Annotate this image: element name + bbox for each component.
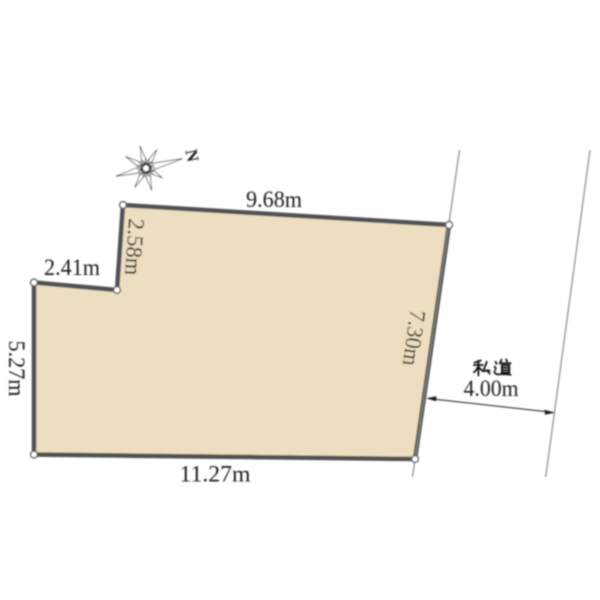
svg-text:2.58m: 2.58m: [120, 218, 149, 277]
svg-text:11.27m: 11.27m: [180, 462, 251, 487]
svg-text:9.68m: 9.68m: [246, 187, 302, 212]
svg-text:2.41m: 2.41m: [44, 255, 100, 280]
svg-text:5.27m: 5.27m: [4, 341, 29, 397]
svg-text:4.00m: 4.00m: [464, 376, 519, 401]
svg-text:N: N: [181, 148, 202, 165]
